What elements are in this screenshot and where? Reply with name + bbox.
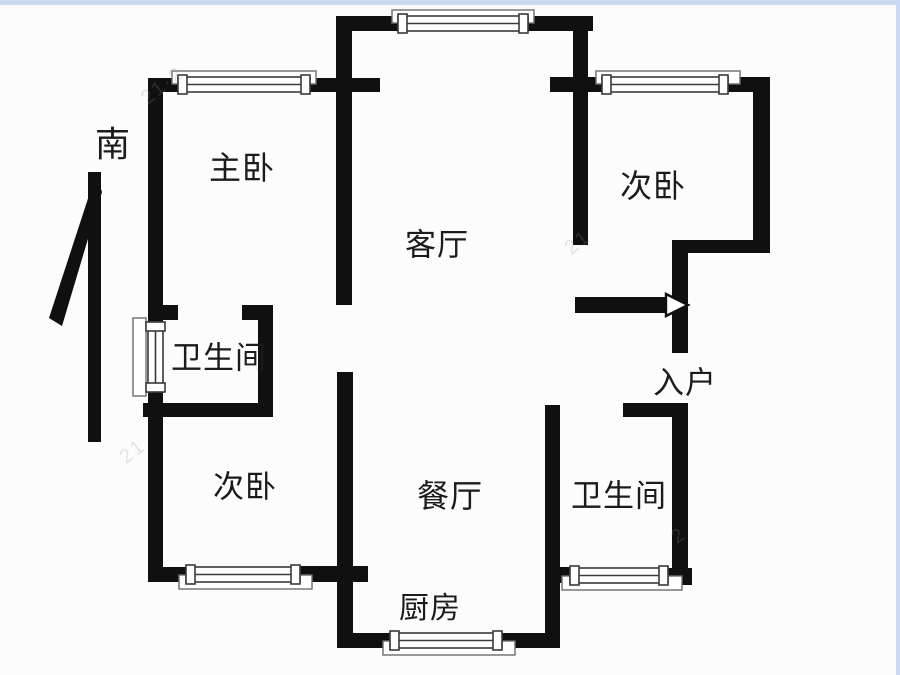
window-frame	[519, 14, 528, 33]
wall	[148, 390, 163, 582]
window-frame	[178, 75, 187, 94]
room-label-living-room: 客厅	[405, 230, 469, 261]
room-label-entrance: 入户	[653, 368, 717, 399]
window-frame	[390, 631, 399, 650]
wall	[753, 77, 770, 250]
wall	[573, 16, 588, 245]
window-frame	[398, 14, 407, 33]
room-label-bathroom-right: 卫生间	[571, 481, 667, 512]
window-frame	[146, 383, 165, 392]
window-frame	[659, 566, 668, 585]
wall	[550, 77, 602, 92]
right-border	[896, 0, 900, 675]
wall	[148, 78, 163, 324]
wall	[148, 305, 178, 320]
room-label-master-bedroom: 主卧	[209, 152, 275, 184]
wall	[575, 297, 668, 313]
window-frame	[493, 631, 502, 650]
room-label-dining-room: 餐厅	[417, 480, 483, 512]
wall	[672, 240, 688, 353]
wall	[337, 372, 353, 648]
room-label-bedroom-top-right: 次卧	[620, 170, 686, 202]
window-sill	[133, 318, 146, 396]
wall	[545, 405, 560, 648]
floorplan-canvas: 南 主卧 次卧 客厅 卫生间 次卧 餐厅 卫生间 入户 厨房 21·221221	[0, 0, 900, 675]
floorplan-svg	[0, 0, 900, 675]
window-frame	[602, 75, 611, 94]
window-frame	[186, 565, 195, 584]
room-label-bedroom-bottom-left: 次卧	[213, 472, 277, 503]
window-frame	[719, 75, 728, 94]
window-frame	[146, 322, 165, 331]
compass-label: 南	[95, 128, 131, 163]
wall	[672, 403, 688, 570]
room-label-bathroom-left: 卫生间	[171, 343, 267, 374]
window-frame	[291, 565, 300, 584]
room-label-kitchen: 厨房	[399, 594, 461, 624]
wall	[336, 16, 352, 305]
window-frame	[301, 75, 310, 94]
window-frame	[570, 566, 579, 585]
top-border	[0, 0, 900, 5]
